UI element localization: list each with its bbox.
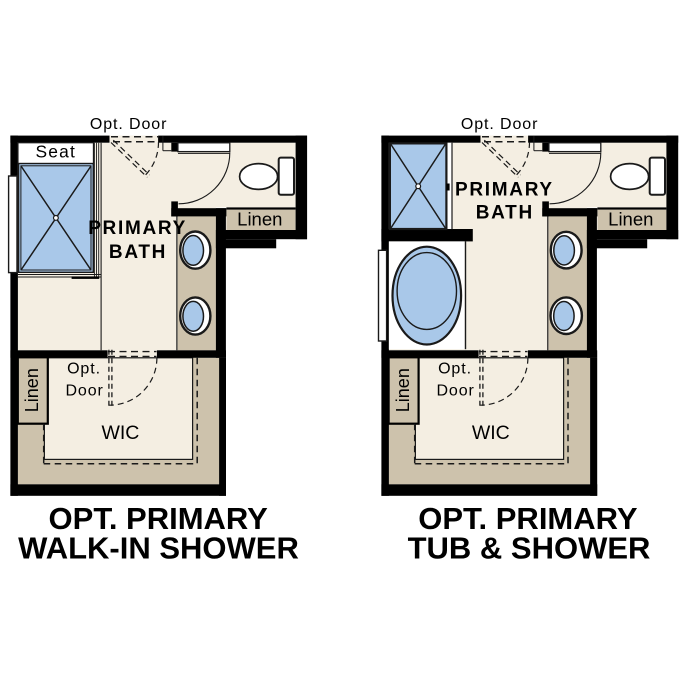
- svg-text:BATH: BATH: [476, 203, 534, 224]
- svg-text:Seat: Seat: [36, 142, 77, 162]
- svg-text:WIC: WIC: [472, 422, 510, 444]
- svg-text:TUB & SHOWER: TUB & SHOWER: [408, 530, 651, 565]
- svg-text:WALK-IN SHOWER: WALK-IN SHOWER: [18, 530, 299, 565]
- svg-text:BATH: BATH: [109, 242, 167, 263]
- svg-text:Door: Door: [436, 383, 474, 400]
- svg-text:Opt. Door: Opt. Door: [461, 116, 538, 133]
- svg-text:Door: Door: [65, 383, 103, 400]
- svg-text:WIC: WIC: [101, 422, 139, 444]
- svg-text:PRIMARY: PRIMARY: [88, 218, 187, 239]
- svg-text:Linen: Linen: [608, 209, 653, 230]
- svg-text:Opt.: Opt.: [67, 361, 101, 378]
- svg-text:Linen: Linen: [237, 209, 282, 230]
- svg-text:Opt.: Opt.: [438, 361, 472, 378]
- svg-text:Opt. Door: Opt. Door: [90, 116, 167, 133]
- svg-text:PRIMARY: PRIMARY: [455, 179, 554, 200]
- svg-text:Linen: Linen: [22, 368, 42, 412]
- svg-text:Linen: Linen: [393, 368, 413, 412]
